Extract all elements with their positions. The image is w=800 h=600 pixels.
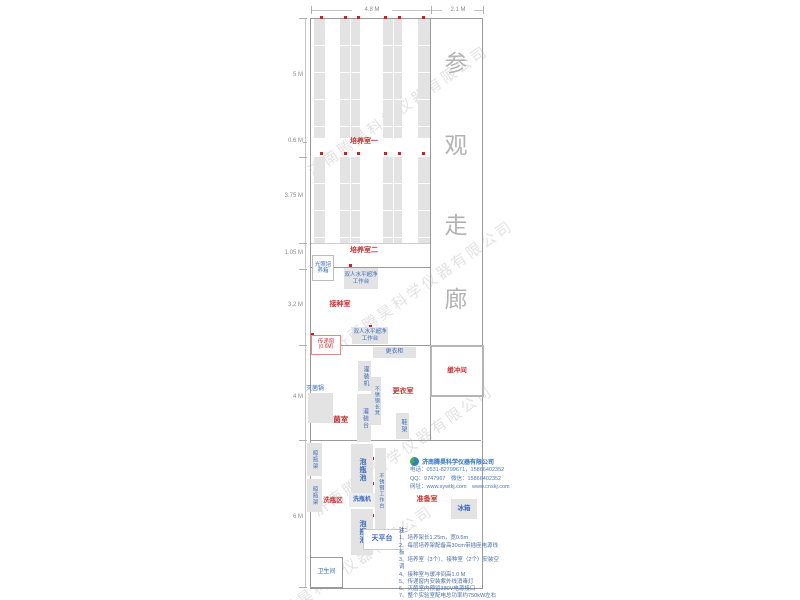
dimension-label-left-2: 0.6 M — [281, 138, 303, 144]
locker-label: 更衣柜 — [385, 349, 403, 356]
company-logo-icon — [410, 457, 419, 466]
shoe-rack-label: 鞋架 — [399, 419, 406, 433]
dimension-label-left-4: 1.05 M — [279, 250, 303, 256]
door-marker — [398, 16, 401, 19]
room-label-changing: 更衣室 — [383, 388, 423, 396]
notes-block: 注： 1、培养架长1.25m，宽0.5m 2、每层培养架配备高30cm带插座电源… — [399, 528, 503, 600]
dimension-label-left-1: 5 M — [281, 72, 303, 78]
dimension-tick — [299, 18, 307, 19]
light-incubator-box: 光照培养箱 — [312, 255, 334, 281]
corridor-label-char: 走 — [441, 206, 471, 240]
filling-machine-box: 灌装机 — [358, 361, 371, 391]
door-marker — [357, 16, 360, 19]
pass-window-size: (0.6M) — [319, 345, 333, 351]
culture-rack — [340, 19, 360, 138]
ss-bench-label: 不锈钢长凳 — [373, 386, 379, 416]
ss-worktable-label: 不锈钢工作台 — [378, 473, 384, 509]
door-marker — [344, 16, 347, 19]
company-web: 网址：www.sywtkj.com www.cnskj.com — [410, 483, 515, 492]
dimension-label-left-3: 3.75 M — [279, 193, 303, 199]
note-item: 2、每层培养架配备高30cm带插座电源线板 — [399, 543, 503, 558]
soaking-pool-label: 泡瓶池 — [358, 458, 366, 482]
bottle-washer-box: 洗瓶机 — [349, 493, 375, 507]
dimension-label-top-1: 4.8 M — [352, 7, 392, 13]
dimension-tick — [299, 587, 307, 588]
door-marker — [422, 16, 425, 19]
door-marker — [422, 152, 425, 155]
drying-rack-box-2: 晾瓶架 — [307, 479, 322, 512]
dimension-tick — [299, 269, 307, 270]
culture-rack — [383, 157, 402, 243]
ss-worktable-box: 不锈钢工作台 — [375, 448, 386, 533]
company-qq: QQ：9747967 微信：15866402352 — [410, 475, 515, 484]
door-marker — [398, 152, 401, 155]
culture-rack — [314, 157, 325, 243]
culture-rack — [418, 19, 430, 138]
culture-rack — [418, 157, 430, 243]
rack-end-line — [311, 243, 430, 244]
corridor-label-char: 廊 — [441, 280, 471, 314]
door-marker — [384, 16, 387, 19]
dimension-tick — [299, 157, 307, 158]
dimension-label-left-7: 6 M — [281, 514, 303, 520]
dimension-tick — [431, 6, 432, 14]
room-label-culture-2: 培养室二 — [340, 247, 388, 255]
toilet-box: 卫生间 — [310, 557, 343, 588]
buffer-room: 缓冲间 — [430, 345, 484, 397]
fridge-box: 冰箱 — [451, 499, 477, 519]
shoe-rack-box: 鞋架 — [396, 413, 409, 439]
balance-table-box: 天平台 — [363, 529, 401, 550]
company-tel: 电话：0531-82799671，15866402352 — [410, 466, 515, 475]
culture-rack — [340, 157, 360, 243]
sterilizer-box — [308, 393, 333, 423]
room-label-culture-1: 培养室一 — [340, 138, 388, 146]
dimension-tick — [311, 6, 312, 14]
company-info: 济南腾昊科学仪器有限公司 电话：0531-82799671，1586640235… — [410, 457, 515, 492]
dimension-label-left-6: 4 M — [281, 394, 303, 400]
locker-box: 更衣柜 — [373, 347, 416, 358]
filling-table-box: 灌装台 — [357, 394, 371, 442]
note-item: 1、培养架长1.25m，宽0.5m — [399, 535, 503, 542]
sterilizer-label: 灭菌锅 — [301, 386, 329, 393]
clean-bench-1: 双人水平超净工作台 — [344, 268, 378, 289]
dimension-line-left — [305, 18, 306, 588]
bottle-washer-label: 洗瓶机 — [353, 497, 371, 504]
room-label-inoculation: 接种室 — [320, 301, 360, 309]
balance-table-label: 天平台 — [372, 535, 393, 543]
drying-rack-label: 晾瓶架 — [311, 450, 317, 470]
pass-window-box: 传递窗 (0.6M) — [311, 335, 341, 355]
door-marker — [320, 16, 323, 19]
light-incubator-label: 光照培养箱 — [313, 262, 333, 275]
dimension-label-top-2: 2.1 M — [442, 7, 474, 13]
drying-rack-label: 晾瓶架 — [311, 486, 317, 506]
door-marker — [349, 264, 352, 267]
dimension-label-left-5: 3.2 M — [281, 302, 303, 308]
note-item: 5、传递窗内安装紫外线消毒灯 — [399, 579, 503, 586]
dimension-tick — [299, 243, 307, 244]
ss-bench-box: 不锈钢长凳 — [371, 377, 381, 425]
company-name: 济南腾昊科学仪器有限公司 — [422, 457, 494, 466]
soaking-pool-box-1: 泡瓶池 — [351, 444, 373, 496]
door-marker — [357, 152, 360, 155]
dimension-tick — [483, 6, 484, 14]
clean-bench-2: 双人水平超净工作台 — [352, 327, 388, 344]
culture-rack — [383, 19, 402, 138]
wall-middle-bottom — [311, 440, 481, 441]
note-item: 3、培养室（3个）、接种室（2个）安装空调 — [399, 557, 503, 572]
door-marker — [384, 152, 387, 155]
dimension-tick — [299, 345, 307, 346]
filling-table-label: 灌装台 — [361, 408, 368, 429]
room-label-buffer: 缓冲间 — [447, 367, 467, 374]
corridor-label-char: 参 — [441, 44, 471, 78]
culture-rack — [314, 19, 325, 138]
dimension-tick — [299, 440, 307, 441]
toilet-label: 卫生间 — [317, 569, 335, 576]
drying-rack-box-1: 晾瓶架 — [307, 443, 322, 476]
clean-bench-label: 双人水平超净工作台 — [352, 329, 388, 342]
door-marker — [344, 152, 347, 155]
filling-machine-label: 灌装机 — [361, 366, 368, 387]
note-item: 4、接种室与缓冲间高1.0 M — [399, 572, 503, 579]
note-item: 7、整个实验室配电总功率约750kW左右 — [399, 593, 503, 600]
corridor-label-char: 观 — [441, 126, 471, 160]
floor-plan-page: 济南腾昊科学仪器有限公司 济南腾昊科学仪器有限公司 济南腾昊科学仪器有限公司 济… — [0, 0, 800, 600]
door-marker — [320, 152, 323, 155]
fridge-label: 冰箱 — [458, 505, 471, 512]
clean-bench-label: 双人水平超净工作台 — [344, 272, 378, 285]
room-label-preparation: 准备室 — [407, 496, 447, 504]
